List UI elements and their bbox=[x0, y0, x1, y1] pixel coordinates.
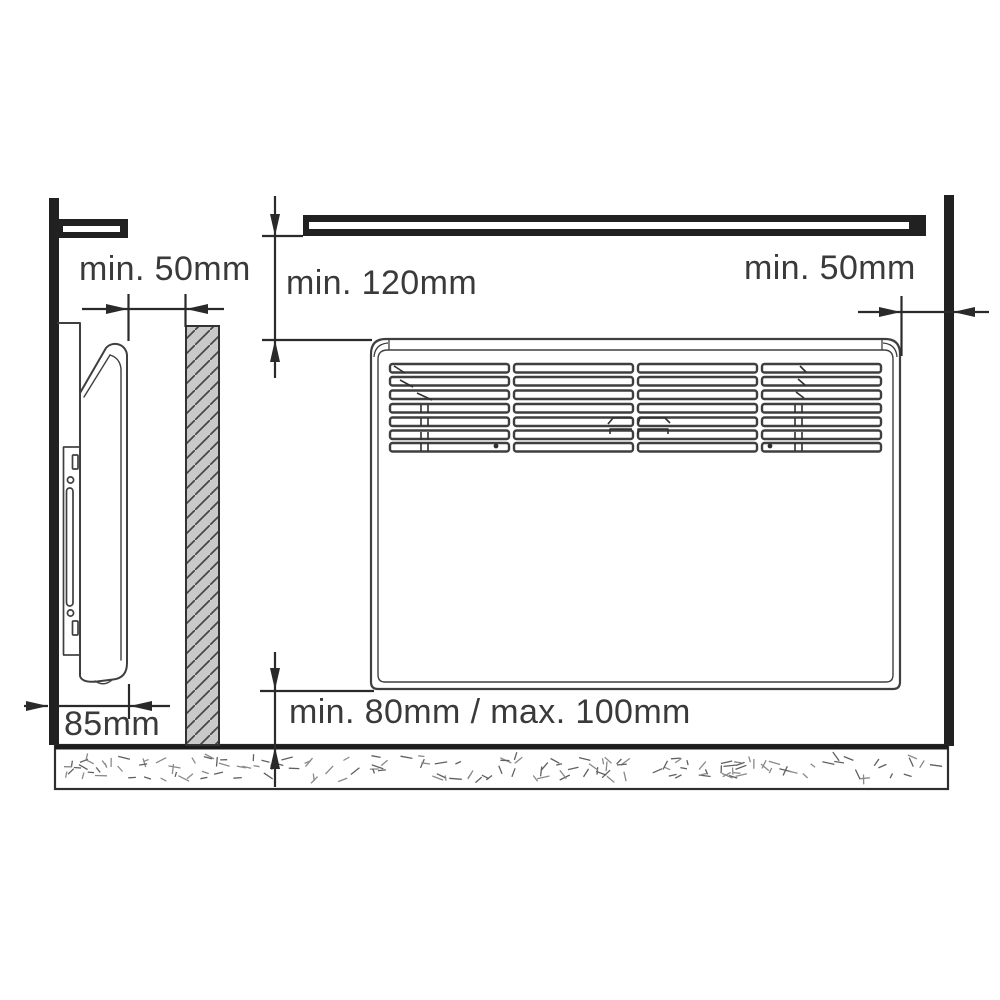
arrow-right-icon bbox=[26, 701, 48, 711]
grille-slat bbox=[762, 431, 881, 440]
arrow-left-icon bbox=[953, 307, 975, 317]
grille-slat bbox=[638, 404, 757, 413]
installation-diagram: min. 50mm min. 120mm min. 50mm 85mm min.… bbox=[0, 0, 1000, 1000]
side-back-panel bbox=[58, 323, 80, 392]
floor-speckle bbox=[74, 768, 81, 769]
grille-slat bbox=[514, 443, 633, 452]
floor-speckle bbox=[313, 774, 314, 781]
ceiling-shelf-left bbox=[58, 219, 128, 238]
floor-speckle bbox=[733, 773, 740, 774]
heater-side-view bbox=[58, 323, 127, 684]
floor bbox=[55, 745, 948, 789]
floor-speckle bbox=[597, 767, 598, 774]
wall-left bbox=[49, 198, 59, 745]
grille-slat bbox=[390, 431, 509, 440]
heater-front-view bbox=[371, 339, 900, 689]
floor-speckle bbox=[88, 772, 94, 773]
grille-slat bbox=[638, 364, 757, 373]
arrow-down-icon bbox=[270, 668, 280, 690]
grille-slat bbox=[514, 431, 633, 440]
grille-slat bbox=[762, 391, 881, 400]
grille-slat bbox=[514, 377, 633, 386]
grille-slat bbox=[390, 404, 509, 413]
arrow-up-icon bbox=[270, 340, 280, 362]
label-top-left-clearance: min. 50mm bbox=[79, 252, 251, 288]
grille-slat bbox=[762, 418, 881, 427]
obstacle-hatched bbox=[186, 326, 219, 745]
floor-speckle bbox=[233, 778, 241, 779]
grille-slat bbox=[514, 364, 633, 373]
label-depth-85mm: 85mm bbox=[64, 707, 160, 743]
diagram-canvas bbox=[0, 0, 1000, 1000]
ceiling-panel bbox=[303, 215, 926, 236]
floor-speckle bbox=[445, 775, 446, 780]
grille-slat bbox=[762, 443, 881, 452]
arrow-down-icon bbox=[270, 214, 280, 236]
grille-slat bbox=[638, 431, 757, 440]
grille-slat bbox=[762, 404, 881, 413]
wall-right bbox=[944, 195, 954, 746]
grille-slat bbox=[390, 364, 509, 373]
label-floor-clearance: min. 80mm / max. 100mm bbox=[289, 695, 691, 731]
floor-speckle bbox=[606, 762, 607, 772]
grille-slat bbox=[390, 418, 509, 427]
grille-slat bbox=[762, 377, 881, 386]
grille-slat bbox=[762, 364, 881, 373]
grille-slat bbox=[390, 443, 509, 452]
arrow-right-icon bbox=[106, 304, 128, 314]
arrow-right-icon bbox=[879, 307, 901, 317]
grille-slat bbox=[390, 391, 509, 400]
floor-speckle bbox=[617, 764, 627, 765]
arrow-left-icon bbox=[186, 304, 208, 314]
grille-slat bbox=[638, 377, 757, 386]
grille-slat bbox=[638, 391, 757, 400]
floor-speckle bbox=[378, 770, 386, 771]
grille-slat bbox=[638, 443, 757, 452]
grille-slat bbox=[514, 391, 633, 400]
grille-slat bbox=[514, 404, 633, 413]
label-top-center-clearance: min. 120mm bbox=[286, 266, 477, 302]
floor-speckle bbox=[217, 757, 218, 767]
floor-speckle bbox=[671, 758, 681, 759]
mounting-bracket bbox=[63, 447, 79, 655]
side-body-outline bbox=[80, 344, 127, 682]
label-top-right-clearance: min. 50mm bbox=[744, 251, 916, 287]
floor-speckle bbox=[418, 756, 424, 757]
